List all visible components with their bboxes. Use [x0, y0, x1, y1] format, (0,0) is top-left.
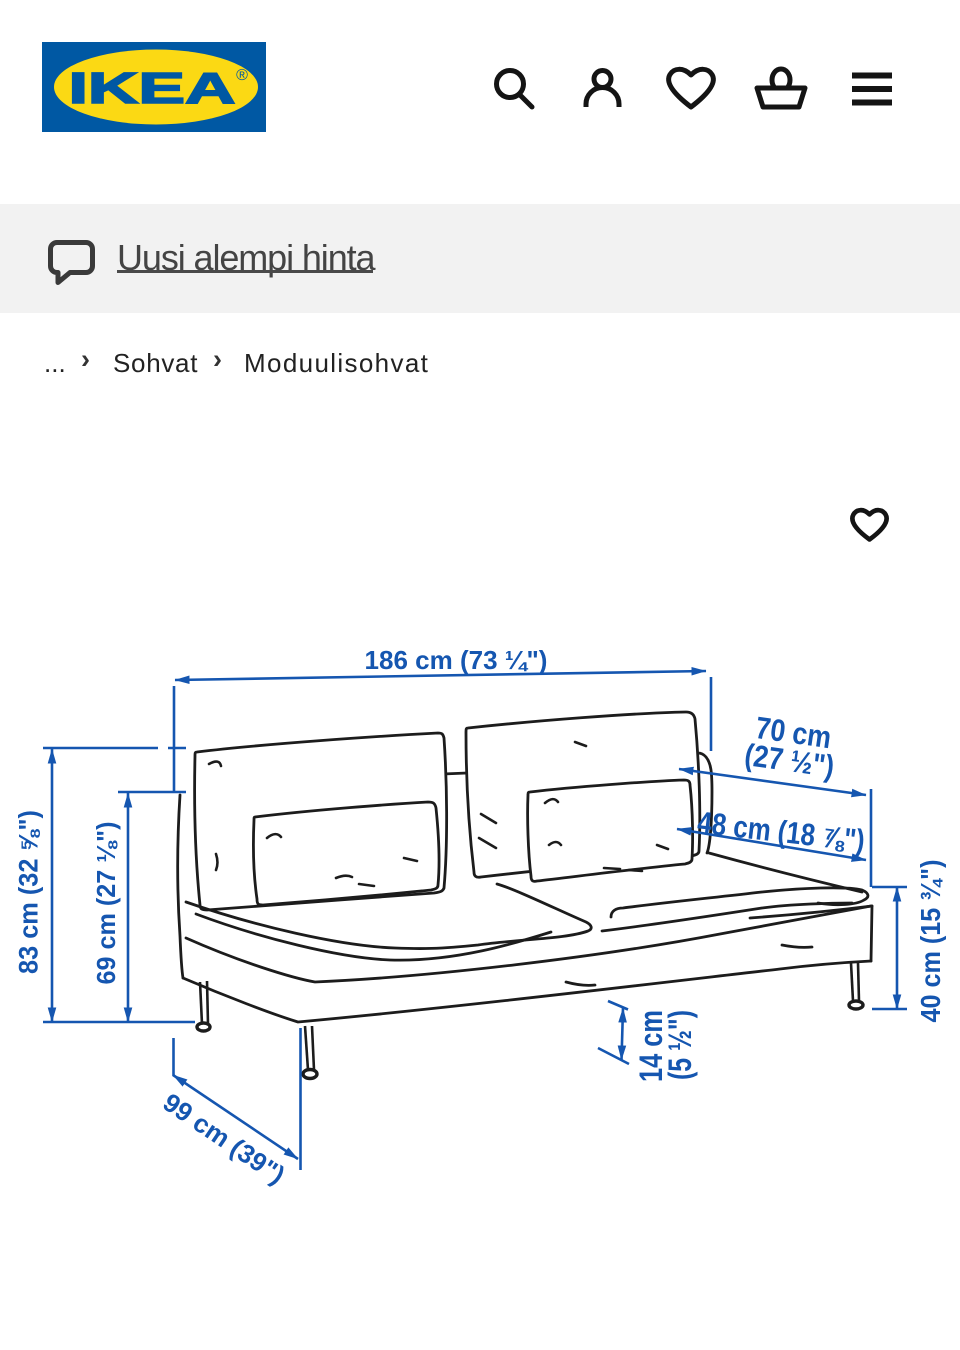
svg-text:69 cm (27 ⅛"): 69 cm (27 ⅛")	[91, 822, 121, 985]
svg-text:(5 ½"): (5 ½")	[662, 1010, 698, 1080]
svg-text:186 cm (73 ¼"): 186 cm (73 ¼")	[365, 645, 548, 675]
svg-text:99 cm (39"): 99 cm (39")	[158, 1087, 291, 1190]
svg-text:IKEA: IKEA	[69, 64, 236, 113]
svg-text:83 cm (32 ⅝"): 83 cm (32 ⅝")	[14, 810, 44, 974]
svg-text:40 cm (15 ¾"): 40 cm (15 ¾")	[915, 860, 946, 1023]
svg-text:48 cm (18 ⅞"): 48 cm (18 ⅞")	[696, 805, 867, 859]
svg-text:®: ®	[236, 67, 248, 84]
